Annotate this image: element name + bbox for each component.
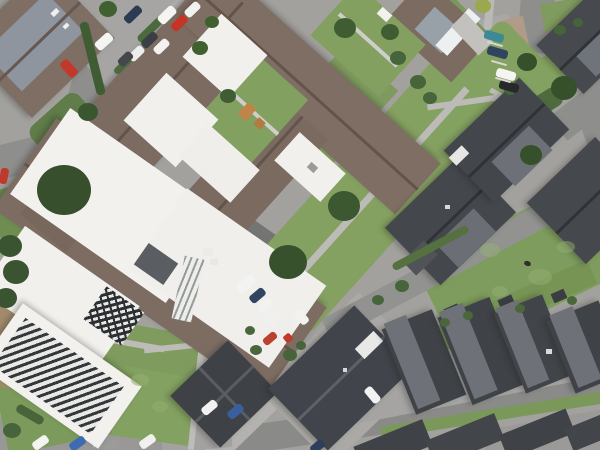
bush-ne-corner-a [554, 25, 566, 35]
field-mottle-c [557, 241, 575, 253]
bush-strip-a [410, 75, 426, 89]
tree-courtyard-nw [220, 89, 236, 103]
tree-lot-a [99, 1, 117, 17]
tree-lot-c [205, 16, 219, 28]
tree-lot-b [192, 41, 208, 55]
bush-strip-b [423, 92, 437, 104]
bush-e2-b [296, 341, 306, 350]
tree-courtyard-ne-c [390, 51, 406, 65]
tree-courtyard-ne-b [381, 24, 399, 40]
bush-g-d [567, 296, 577, 305]
service-white-a [203, 248, 213, 256]
bush-f-b [372, 295, 384, 305]
lawn-mottle-b [152, 401, 168, 412]
service-white-b [210, 259, 218, 265]
aerial-map-canvas [0, 0, 600, 450]
car-red-edge [0, 167, 9, 184]
bush-g-a [440, 318, 450, 327]
bush-e2-a [283, 349, 297, 361]
field-mottle-a [480, 243, 500, 257]
tree-road-west [37, 165, 91, 215]
bush-g-c [515, 304, 525, 313]
roof-skylight-g3 [546, 349, 552, 354]
tree-strip-b [269, 245, 307, 279]
tree-ne-c [520, 145, 542, 165]
tree-ne-b [551, 76, 577, 100]
bush-sw-corner [3, 423, 21, 438]
tree-nw [78, 103, 98, 121]
lawn-mottle-a [131, 374, 149, 386]
bush-f-a [395, 280, 409, 292]
tree-ne-a [517, 53, 537, 71]
tree-courtyard-ne-a [334, 18, 356, 38]
bush-g-b [463, 311, 473, 320]
tree-strip-a [328, 191, 360, 221]
field-mottle-d [492, 286, 508, 297]
field-mottle-b [528, 269, 552, 285]
bush-ne-corner-b [573, 18, 583, 27]
tree-west-b [3, 260, 29, 284]
bush-road-a [250, 345, 262, 355]
roof-vent-s2 [343, 368, 347, 372]
bush-road-b [245, 326, 255, 335]
roof-vent-e1 [445, 205, 450, 209]
